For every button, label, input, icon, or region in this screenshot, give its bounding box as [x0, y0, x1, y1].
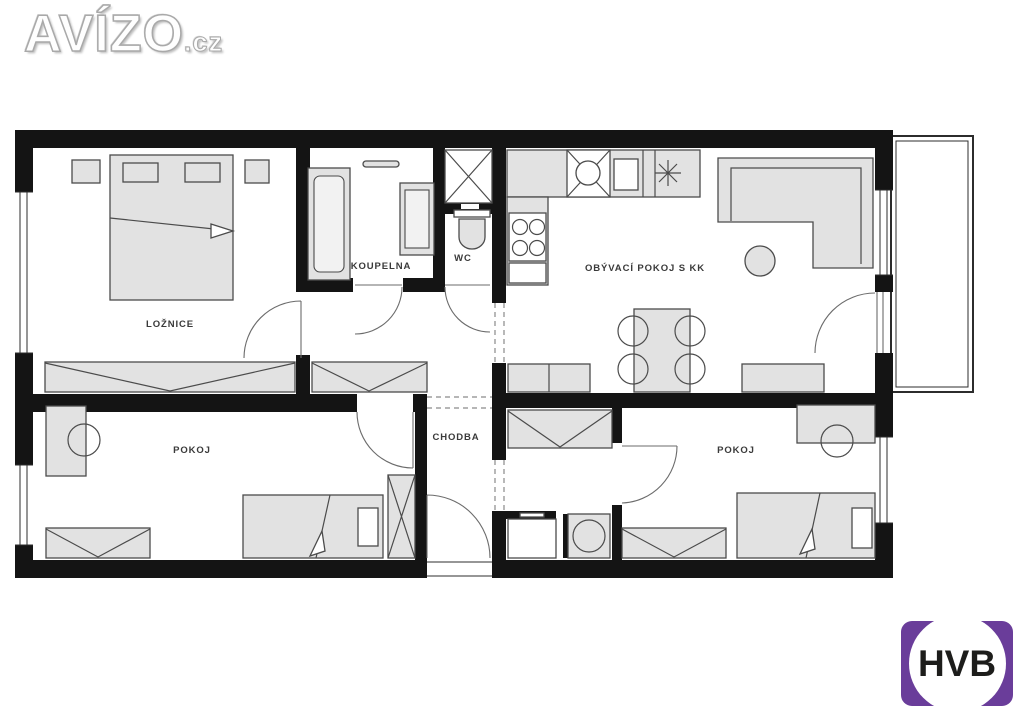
window-bedroom [15, 192, 33, 353]
floor-plan: LOŽNICE KOUPELNA WC OBÝVACÍ POKOJ S KK C… [0, 0, 1024, 723]
wardrobe [45, 362, 295, 392]
wardrobe [622, 528, 726, 558]
wardrobe [312, 362, 427, 392]
desk [797, 405, 875, 443]
pillow [123, 163, 158, 182]
room-right-door [622, 446, 677, 503]
bedroom-furniture [45, 155, 295, 392]
hvb-logo-text: HVB [918, 643, 996, 685]
nightstand [245, 160, 269, 183]
hvb-logo-circle: HVB [909, 621, 1006, 706]
screenshot-root: AVÍZO.cz [0, 0, 1024, 723]
desk [46, 406, 86, 476]
coffee-table [745, 246, 775, 276]
room-label-bedroom: LOŽNICE [146, 318, 194, 330]
room-label-hallway: CHODBA [432, 432, 479, 443]
balcony [891, 136, 973, 392]
under-counter-appliance [509, 263, 546, 283]
wc-furniture [454, 210, 490, 249]
room-label-bathroom: KOUPELNA [351, 261, 412, 272]
room-right-furniture [622, 405, 875, 558]
bathroom-door [355, 285, 402, 334]
hvb-logo: HVB [901, 621, 1013, 706]
entrance-threshold [427, 562, 492, 576]
toilet-bowl [459, 219, 485, 249]
window-room-left [15, 465, 33, 545]
opening-living-room [495, 303, 504, 363]
room-label-room-left: POKOJ [173, 445, 211, 456]
opening-hallway [427, 397, 492, 408]
room-label-wc: WC [454, 253, 472, 264]
wardrobe [46, 528, 150, 558]
bedroom-door [244, 301, 301, 358]
pillow [185, 163, 220, 182]
faucet [520, 513, 544, 517]
utility-sink [508, 519, 556, 558]
balcony-outer [891, 136, 973, 392]
kitchen-appliance [614, 159, 638, 190]
window-room-right [875, 437, 893, 523]
wardrobe [508, 410, 612, 448]
pillow [852, 508, 872, 548]
bathtub-basin [314, 176, 344, 272]
pillow [358, 508, 378, 546]
balcony-door [815, 292, 883, 353]
nightstand [72, 160, 100, 183]
room-label-living-room: OBÝVACÍ POKOJ S KK [585, 262, 705, 274]
opening-corridor [495, 460, 504, 511]
kitchen-sink-basin [576, 161, 600, 185]
wc-door [445, 285, 490, 332]
towel-rail [363, 161, 399, 167]
corner-sofa [718, 158, 873, 268]
entrance-door [427, 495, 490, 558]
room-label-room-right: POKOJ [717, 445, 755, 456]
shaft-vent [461, 204, 479, 209]
bathroom-cabinet-inner [405, 190, 429, 248]
sideboard [742, 364, 824, 392]
toilet-tank [454, 210, 490, 217]
dining-table [634, 309, 690, 392]
shaft [445, 150, 492, 209]
room-left-door [357, 412, 413, 468]
